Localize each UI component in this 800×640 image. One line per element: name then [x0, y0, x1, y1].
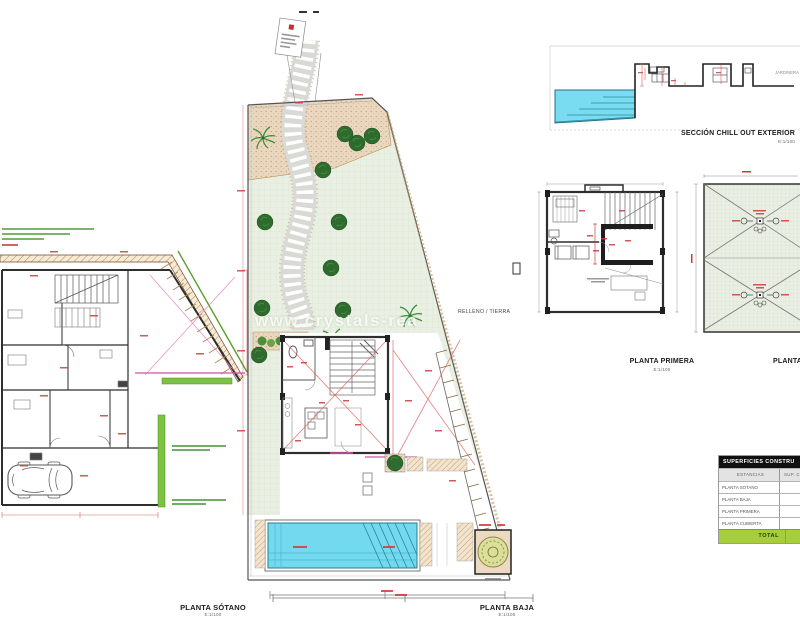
table-row: PLANTA SOTANO 184: [719, 481, 800, 493]
basement-stairs: [55, 275, 118, 303]
door-marker: [512, 262, 522, 276]
table-row: PLANTA PRIMERA 87: [719, 505, 800, 517]
pool: [255, 520, 432, 571]
total-label: TOTAL: [719, 530, 786, 543]
roof-plan-title: PLANTA C: [773, 358, 800, 365]
row-value: [780, 518, 800, 529]
green-planter-strip-v: [158, 415, 165, 507]
green-notes-micro: [172, 445, 226, 505]
basement-plan-drawing: [0, 215, 250, 610]
table-row: PLANTA CUBIERTA: [719, 517, 800, 529]
header-estancias: ESTANCIAS: [719, 469, 780, 481]
section-title: SECCIÓN CHILL OUT EXTERIOR: [640, 130, 795, 137]
car-top-view: [8, 462, 72, 498]
watermark-text: www.crystals-rea: [255, 311, 418, 331]
first-floor-title: PLANTA PRIMERA: [622, 358, 702, 365]
row-label: PLANTA BAJA: [719, 494, 780, 505]
ground-floor-scale: E:1/100: [467, 612, 547, 617]
section-dimensions: [638, 64, 721, 86]
surfaces-table-header: ESTANCIAS SUP. CON: [719, 468, 800, 481]
row-label: PLANTA PRIMERA: [719, 506, 780, 517]
first-floor-plan-drawing: [535, 180, 685, 330]
ground-floor-title: PLANTA BAJA: [467, 603, 547, 612]
jardinera-label: JARDINERA: [775, 70, 799, 75]
table-total-row: TOTAL: [719, 529, 800, 543]
basement-scale: E:1/100: [173, 612, 253, 617]
row-label: PLANTA SOTANO: [719, 482, 780, 493]
surfaces-table-title: SUPERFICIES CONSTRU: [719, 456, 800, 468]
relleno-tierra-label: RELLENO / TIERRA: [458, 309, 510, 315]
green-planter-strip-h: [162, 378, 232, 384]
boundary-hatch-band: [0, 255, 243, 382]
roof-plan-drawing: [690, 170, 800, 345]
entrance-label-box: [275, 18, 306, 57]
house-ground-floor: [280, 335, 390, 455]
row-value: 184: [780, 482, 800, 493]
first-floor-scale: E:1/100: [622, 367, 702, 372]
architectural-sheet: { "drawing": { "labels": { "planta_sotan…: [0, 0, 800, 640]
section-drawing: [545, 40, 800, 135]
row-value: 87: [780, 506, 800, 517]
surfaces-table: SUPERFICIES CONSTRU ESTANCIAS SUP. CON P…: [718, 455, 800, 544]
row-label: PLANTA CUBIERTA: [719, 518, 780, 529]
section-scale: E:1/100: [640, 139, 795, 144]
header-superficie: SUP. CON: [780, 469, 800, 481]
plot-notes-micro: [2, 228, 94, 246]
section-details: [650, 67, 751, 82]
garden-path: [292, 40, 307, 330]
dimension-marks-red: [20, 251, 204, 477]
table-row: PLANTA BAJA 87: [719, 493, 800, 505]
boundary-stair-treads: [161, 262, 232, 374]
total-value: [786, 530, 800, 543]
basement-title: PLANTA SÓTANO: [173, 603, 253, 612]
row-value: 87: [780, 494, 800, 505]
